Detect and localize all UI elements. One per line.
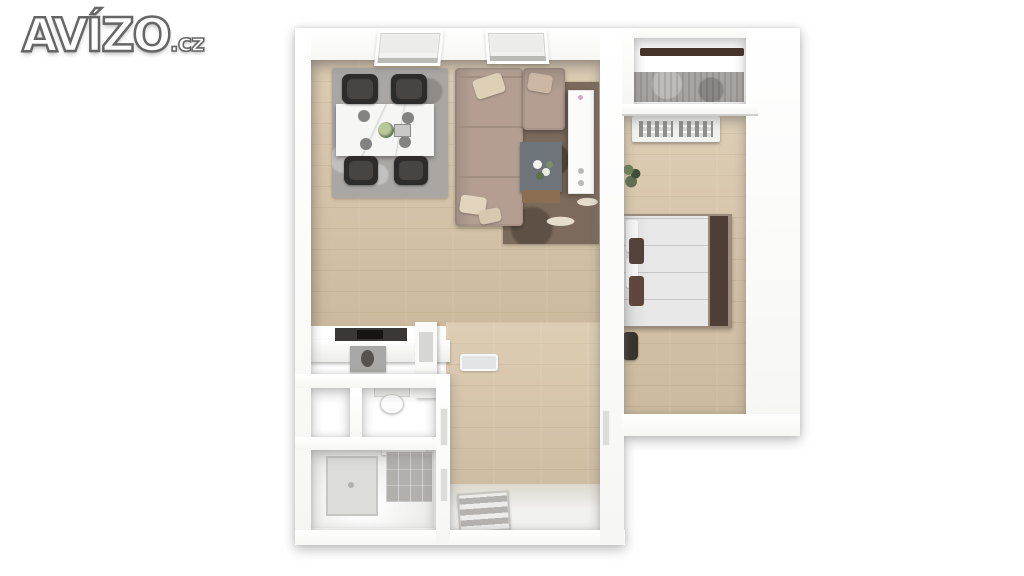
logo-suffix: .cz bbox=[170, 29, 204, 57]
skylight-window bbox=[374, 30, 444, 66]
window-frame bbox=[490, 56, 546, 61]
balcony-railing bbox=[640, 48, 744, 56]
window-pane bbox=[490, 35, 543, 52]
window-frame bbox=[377, 58, 438, 63]
page: AVÍZO.cz bbox=[0, 0, 1024, 576]
door-frame bbox=[602, 410, 610, 446]
window-pane bbox=[380, 35, 438, 53]
logo-text: AVÍZO bbox=[22, 8, 170, 62]
avizo-logo: AVÍZO.cz bbox=[22, 8, 204, 62]
details-layer bbox=[290, 22, 810, 550]
door-frame bbox=[440, 408, 448, 446]
skylight-window bbox=[485, 30, 549, 64]
door-frame bbox=[440, 468, 448, 502]
floor-plan bbox=[290, 22, 810, 550]
